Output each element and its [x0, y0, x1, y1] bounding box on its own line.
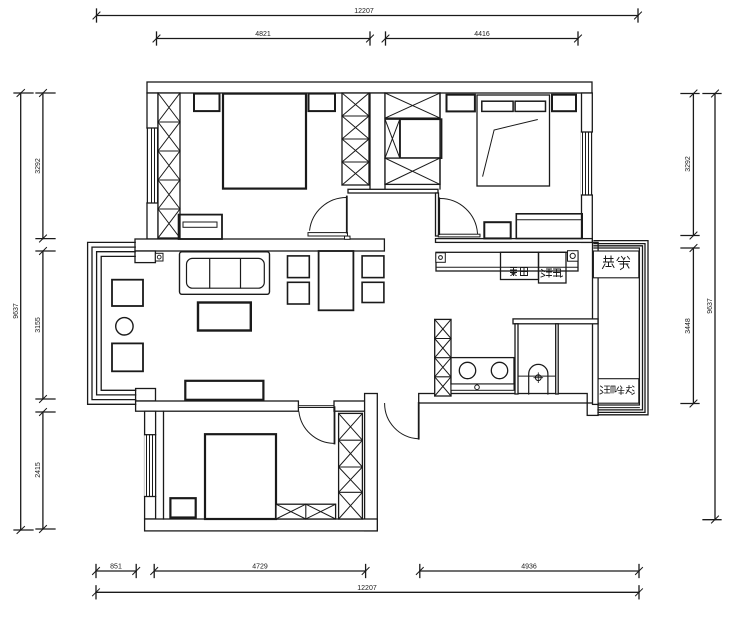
svg-text:2415: 2415 [35, 462, 42, 478]
svg-text:3155: 3155 [35, 317, 42, 333]
svg-text:9637: 9637 [707, 298, 714, 314]
svg-text:851: 851 [110, 564, 122, 571]
svg-text:4936: 4936 [521, 564, 537, 571]
svg-text:4729: 4729 [252, 564, 268, 571]
svg-text:12207: 12207 [357, 585, 377, 592]
svg-text:3292: 3292 [685, 156, 692, 172]
svg-text:9637: 9637 [13, 303, 20, 319]
svg-text:3292: 3292 [35, 158, 42, 174]
svg-text:12207: 12207 [354, 8, 374, 15]
svg-text:4416: 4416 [474, 31, 490, 38]
svg-text:3448: 3448 [685, 318, 692, 334]
svg-text:4821: 4821 [255, 31, 271, 38]
